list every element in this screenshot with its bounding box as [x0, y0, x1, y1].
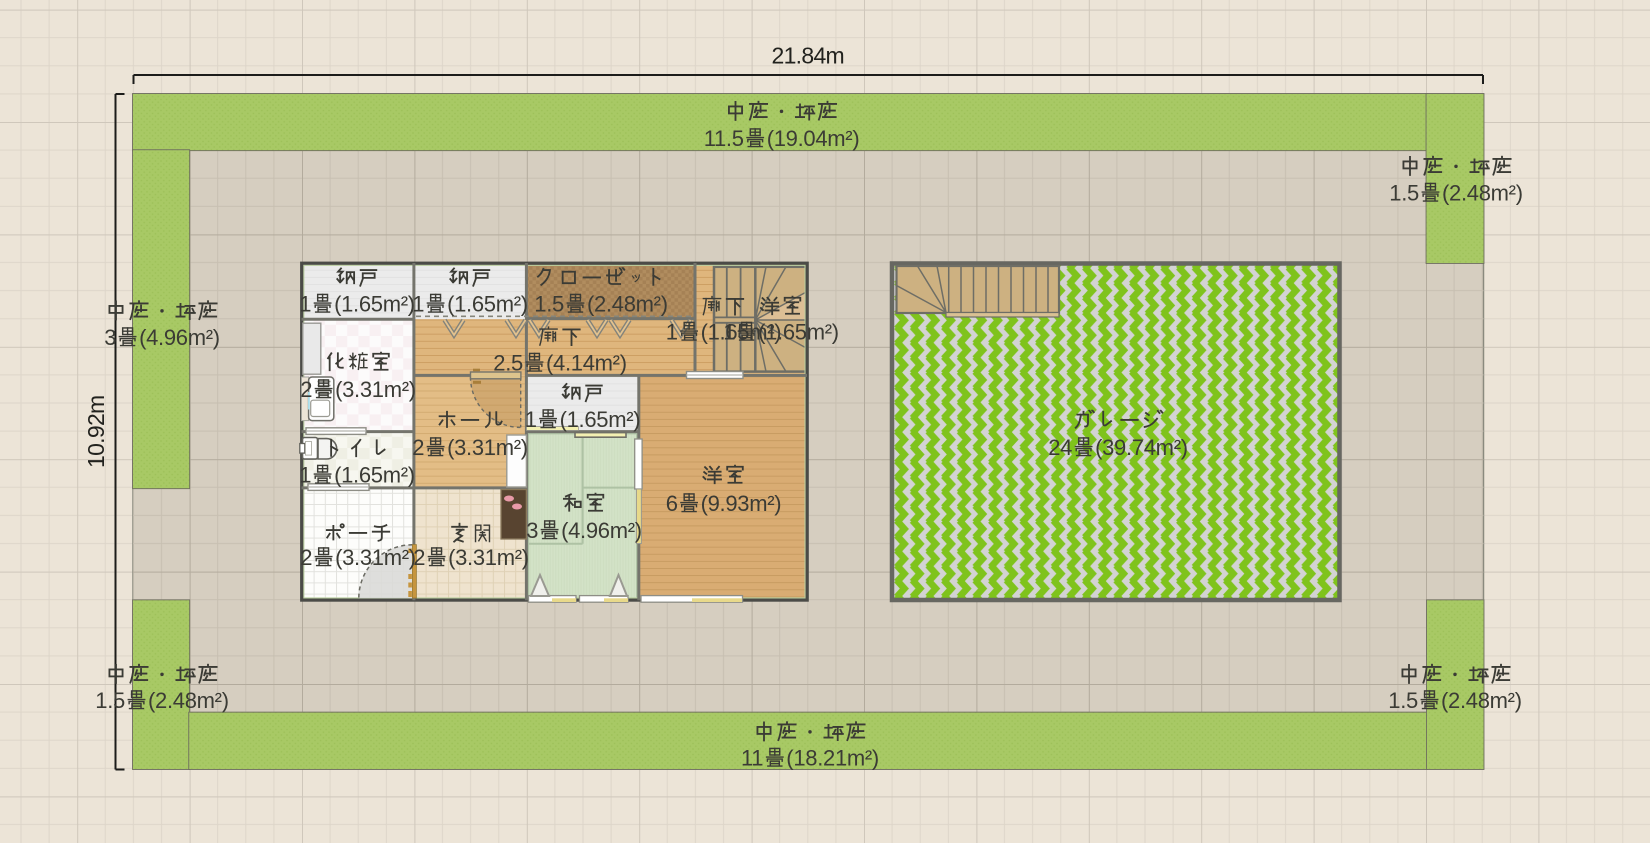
- svg-text:(2.48m²): (2.48m²): [148, 688, 229, 713]
- svg-text:(1.65m²): (1.65m²): [560, 407, 641, 432]
- svg-text:(19.04m²): (19.04m²): [767, 126, 860, 151]
- svg-text:2: 2: [413, 545, 425, 570]
- svg-text:1: 1: [299, 291, 311, 316]
- svg-text:1.5: 1.5: [534, 291, 564, 316]
- svg-text:1: 1: [525, 407, 537, 432]
- svg-text:(3.31m²): (3.31m²): [335, 377, 416, 402]
- svg-text:(4.14m²): (4.14m²): [546, 350, 627, 375]
- svg-text:(3.31m²): (3.31m²): [447, 435, 528, 460]
- svg-text:2.5: 2.5: [493, 350, 523, 375]
- svg-text:1: 1: [412, 291, 424, 316]
- svg-text:(3.31m²): (3.31m²): [448, 545, 529, 570]
- svg-text:1: 1: [666, 319, 678, 344]
- svg-text:(1.65m²): (1.65m²): [334, 462, 415, 487]
- svg-text:11: 11: [741, 745, 763, 770]
- svg-text:6: 6: [666, 491, 678, 516]
- svg-text:1: 1: [299, 462, 311, 487]
- svg-text:(1.65m²): (1.65m²): [334, 291, 415, 316]
- svg-text:(2.48m²): (2.48m²): [1442, 180, 1523, 205]
- svg-text:2: 2: [412, 435, 424, 460]
- svg-text:(2.48m²): (2.48m²): [1441, 688, 1522, 713]
- svg-text:24: 24: [1048, 435, 1072, 460]
- svg-text:(1.65m²): (1.65m²): [758, 319, 839, 344]
- svg-text:10.92m: 10.92m: [83, 395, 109, 468]
- svg-text:21.84m: 21.84m: [772, 43, 845, 69]
- svg-text:1: 1: [723, 319, 735, 344]
- svg-text:(4.96m²): (4.96m²): [139, 325, 220, 350]
- svg-text:(2.48m²): (2.48m²): [587, 291, 668, 316]
- svg-text:3: 3: [104, 325, 116, 350]
- svg-text:1.5: 1.5: [1389, 180, 1419, 205]
- svg-text:2: 2: [300, 545, 312, 570]
- svg-text:11.5: 11.5: [704, 126, 744, 151]
- svg-text:(9.93m²): (9.93m²): [701, 491, 782, 516]
- svg-text:(18.21m²): (18.21m²): [786, 745, 879, 770]
- svg-text:1.5: 1.5: [1388, 688, 1418, 713]
- svg-text:(39.74m²): (39.74m²): [1095, 435, 1188, 460]
- svg-text:3: 3: [526, 518, 538, 543]
- svg-text:(1.65m²): (1.65m²): [447, 291, 528, 316]
- svg-text:2: 2: [300, 377, 312, 402]
- svg-text:1.5: 1.5: [95, 688, 125, 713]
- svg-text:(3.31m²): (3.31m²): [335, 545, 416, 570]
- svg-text:(4.96m²): (4.96m²): [561, 518, 642, 543]
